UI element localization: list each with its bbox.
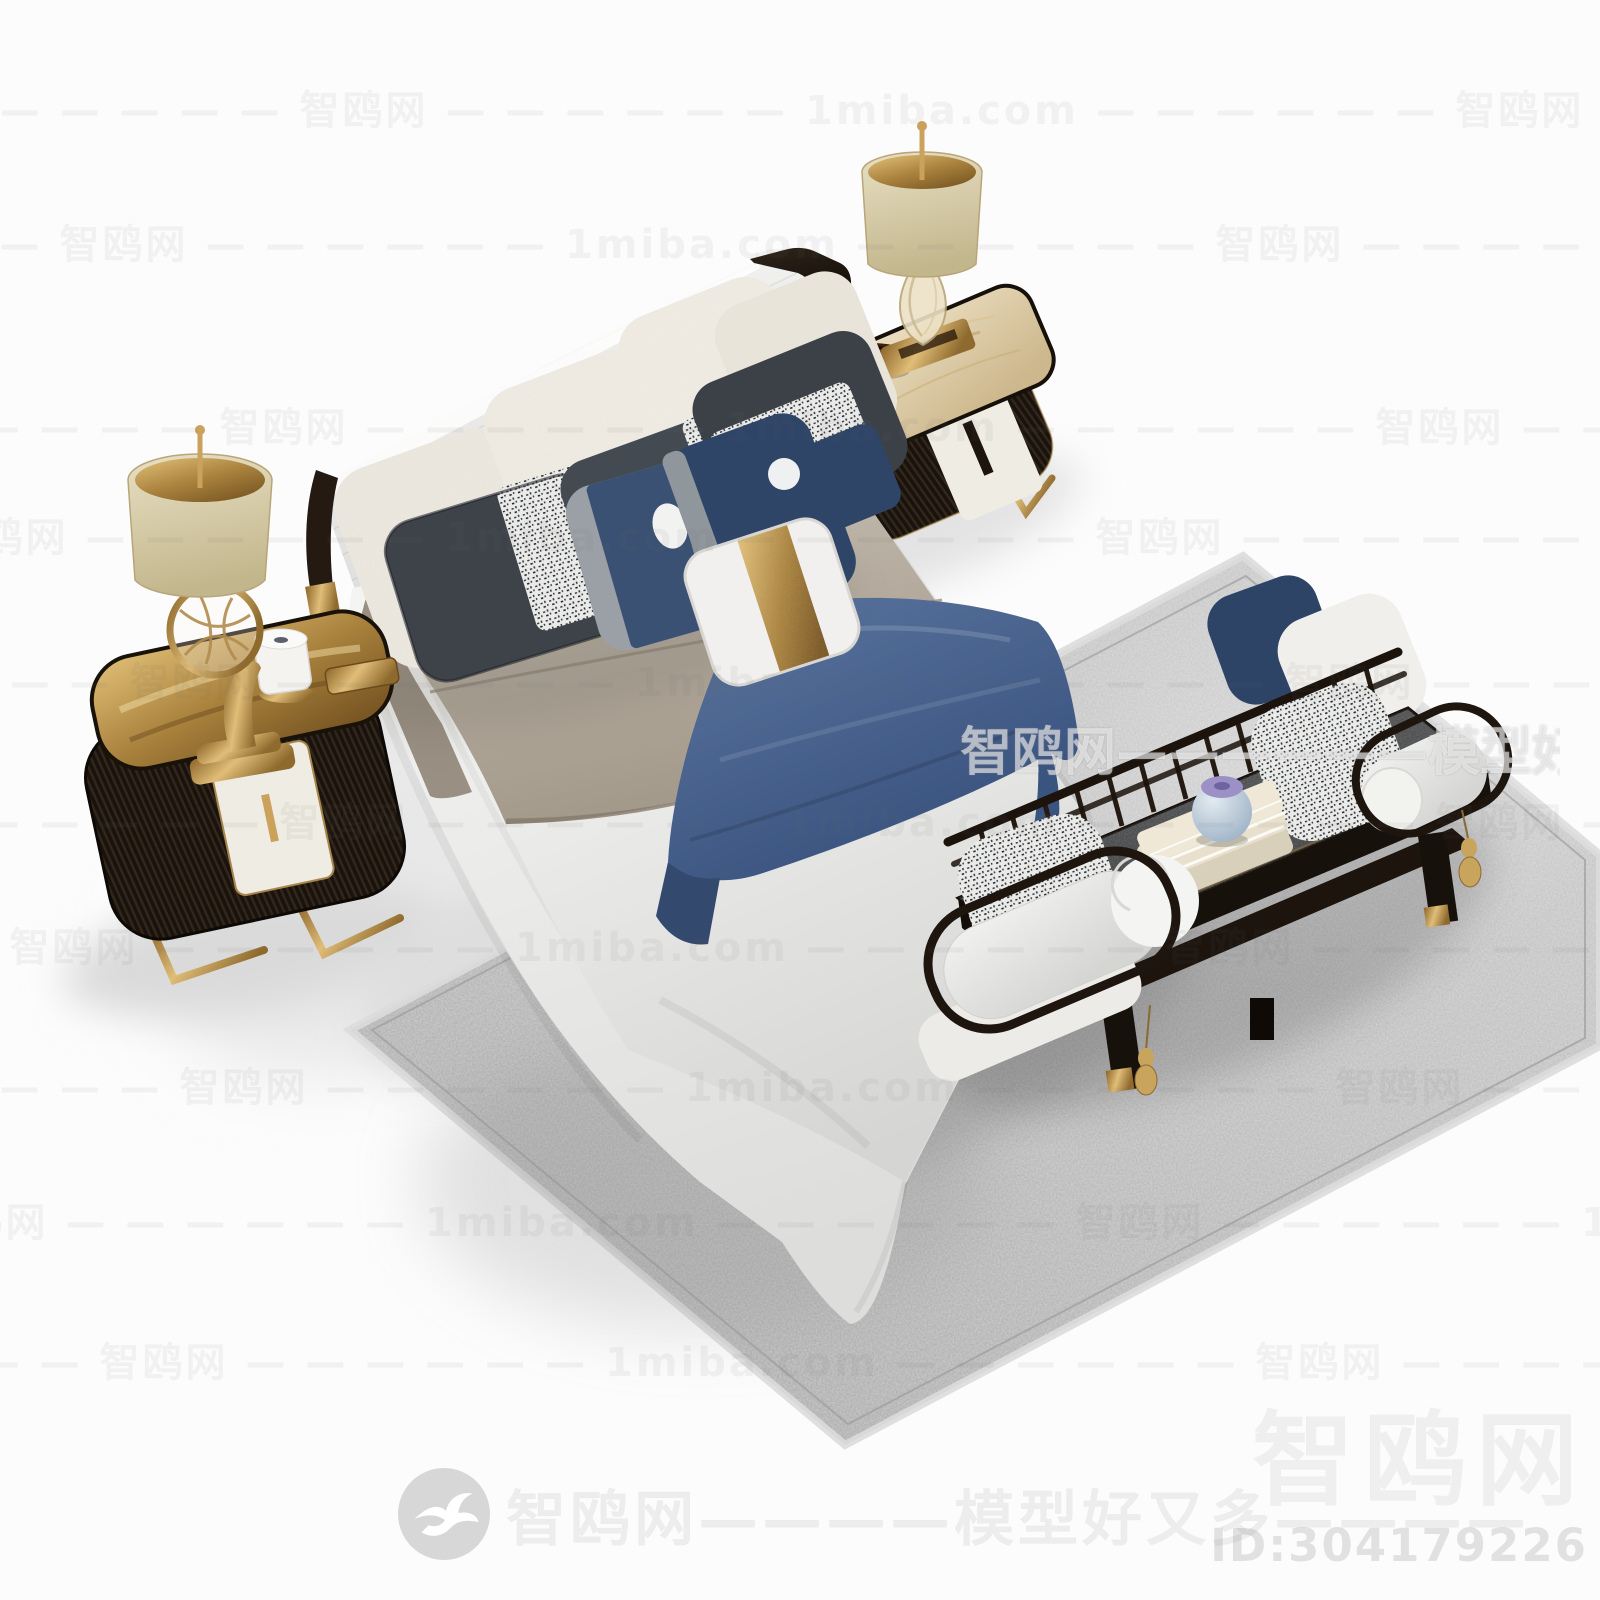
- pillow-button-disc: [768, 458, 800, 490]
- model-id: ID:304179226: [1210, 1519, 1588, 1572]
- lamp-left-openwork-disc: [170, 585, 260, 675]
- product-image: — — — — — — 智鸥网 — — — — — — 1miba.com — …: [0, 0, 1600, 1600]
- aroma-diffuser: [253, 629, 315, 703]
- watermark-center-overlay: 智鸥网——————模型好又多————: [960, 710, 1560, 785]
- seagull-icon: [398, 1468, 490, 1560]
- watermark-corner: 智鸥网 ID:304179226: [1210, 1411, 1588, 1572]
- bedroom-scene: [0, 0, 1600, 1600]
- site-logo-text: 智鸥网: [1210, 1411, 1588, 1513]
